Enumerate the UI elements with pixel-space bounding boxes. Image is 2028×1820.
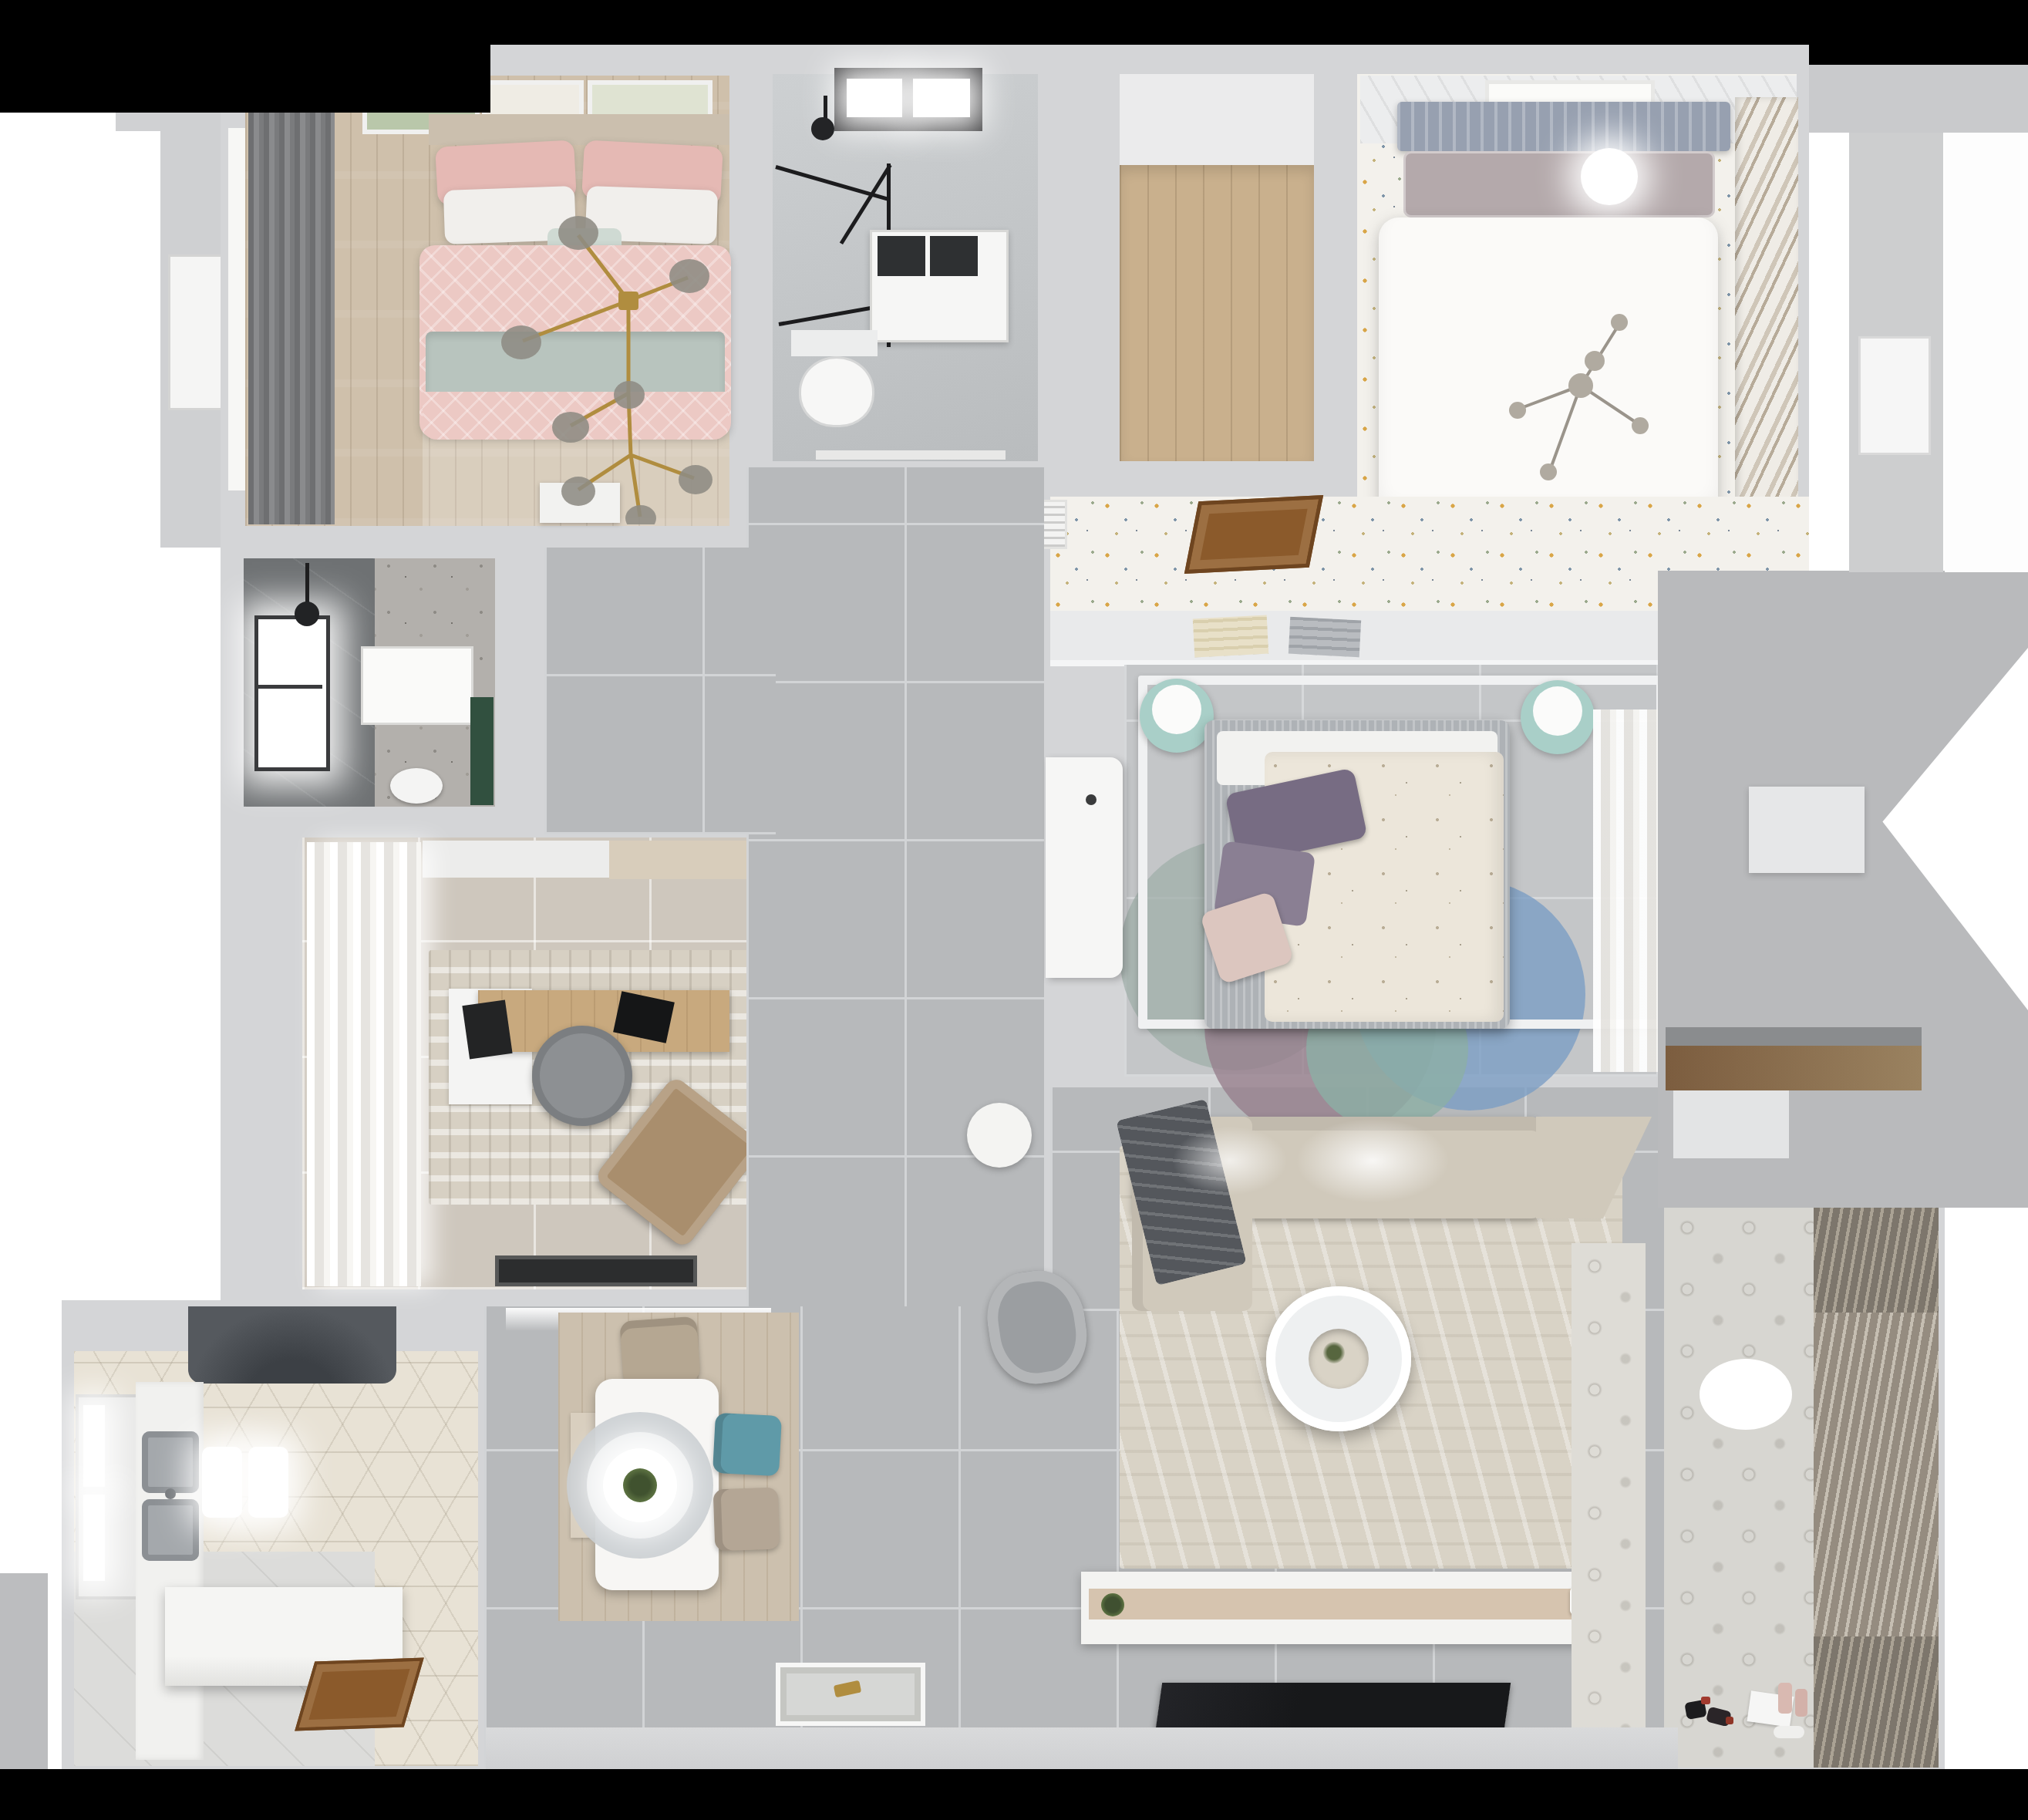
shower-head-icon bbox=[295, 602, 319, 626]
room-bathroom-main bbox=[773, 74, 1038, 461]
crop-mask-top-left bbox=[0, 0, 490, 113]
console-plant bbox=[1101, 1593, 1124, 1616]
storage-niche-shadow bbox=[1666, 1027, 1922, 1047]
terrace-slab bbox=[1749, 787, 1865, 873]
white-roll bbox=[1774, 1726, 1804, 1738]
pillow-band bbox=[1403, 151, 1715, 217]
ceiling-light-oval bbox=[1700, 1359, 1792, 1430]
bottom-wall-light-band bbox=[486, 1727, 1678, 1769]
exterior-door-right bbox=[1858, 336, 1931, 455]
bedside-lamp bbox=[1581, 148, 1638, 205]
swivel-chair bbox=[532, 1026, 632, 1126]
balcony-blinds-top bbox=[1814, 1205, 1939, 1313]
dining-chair-beige bbox=[713, 1488, 780, 1552]
table-plant-sprig bbox=[1323, 1342, 1345, 1363]
green-ledge bbox=[470, 697, 494, 805]
room-walk-in bbox=[1120, 74, 1314, 461]
branch-chandelier-icon bbox=[463, 201, 740, 524]
bed-headboard bbox=[1397, 102, 1730, 151]
toilet-bowl bbox=[390, 768, 443, 804]
toy-red bbox=[1701, 1697, 1710, 1704]
walkin-floor bbox=[1120, 165, 1314, 461]
washer-drum bbox=[930, 236, 978, 276]
washer-drum bbox=[878, 236, 925, 276]
sheer-curtain-wall bbox=[307, 842, 421, 1286]
room-bedroom-secondary bbox=[245, 76, 729, 526]
sofa-light-glow bbox=[1172, 1126, 1288, 1195]
room-balcony bbox=[1664, 1205, 1939, 1768]
sheer-wardrobe-curtain bbox=[1593, 709, 1658, 1072]
side-table-white bbox=[967, 1103, 1032, 1168]
desk-knob bbox=[1086, 794, 1097, 805]
sofa-light-glow bbox=[1295, 1118, 1450, 1203]
pendant-light bbox=[248, 1447, 288, 1518]
floorplan-render bbox=[0, 0, 2028, 1820]
tablet-black bbox=[462, 999, 512, 1059]
roman-blind bbox=[248, 77, 335, 524]
bed-headboard bbox=[429, 114, 729, 145]
skylight-pane bbox=[847, 79, 902, 117]
sink-basin bbox=[142, 1431, 199, 1493]
white-desk bbox=[1046, 757, 1123, 978]
skylight-pane bbox=[913, 79, 970, 117]
right-white-area bbox=[1945, 133, 2028, 572]
range-hood bbox=[188, 1306, 396, 1384]
pink-bottle bbox=[1795, 1689, 1807, 1717]
toilet-tank bbox=[791, 330, 878, 356]
door-mat-black bbox=[495, 1255, 697, 1286]
headboard-shelf-wall bbox=[1050, 611, 1681, 665]
sprig-chandelier-icon bbox=[1496, 293, 1666, 494]
dining-chair-beige bbox=[619, 1316, 701, 1387]
sink-faucet bbox=[165, 1488, 176, 1499]
open-walnut-door bbox=[1184, 495, 1323, 574]
room-dining bbox=[478, 1300, 910, 1771]
tv-console-wood-shelf bbox=[1089, 1589, 1599, 1619]
walkin-ceiling-edge bbox=[1120, 74, 1314, 165]
lamp-plant bbox=[623, 1468, 657, 1502]
storage-niche-wood bbox=[1666, 1046, 1922, 1090]
shower-stem bbox=[305, 563, 309, 605]
threshold bbox=[816, 450, 1006, 460]
room-bathroom-shower bbox=[244, 558, 495, 807]
dining-chair-teal bbox=[712, 1413, 782, 1476]
kitchen-window-pane bbox=[83, 1405, 105, 1487]
window-glow-bedroom2 bbox=[228, 128, 247, 490]
exterior-door bbox=[168, 254, 227, 410]
sink-basin bbox=[142, 1499, 199, 1561]
corridor-floor-upper-left bbox=[544, 548, 776, 834]
mint-pouf-tray bbox=[1152, 685, 1201, 734]
shelf-books bbox=[1193, 615, 1268, 658]
crop-mask-top-right bbox=[1809, 0, 2028, 65]
pendant-light bbox=[202, 1447, 242, 1518]
crop-mask-bottom bbox=[0, 1769, 2028, 1820]
kitchen-window-pane bbox=[83, 1495, 105, 1581]
bath2-window bbox=[254, 615, 330, 771]
pink-bottle bbox=[1778, 1683, 1792, 1714]
toilet-bowl bbox=[799, 356, 874, 427]
left-exterior-strip bbox=[0, 1573, 48, 1769]
patterned-walkway-strip bbox=[1572, 1243, 1646, 1768]
corridor-floor bbox=[746, 467, 1044, 1316]
room-kitchen bbox=[74, 1351, 478, 1766]
balcony-blinds-bottom bbox=[1814, 1636, 1939, 1768]
bath2-window-bar bbox=[254, 685, 322, 689]
toy-red bbox=[1726, 1717, 1733, 1724]
shelf-books bbox=[1289, 617, 1361, 658]
room-study bbox=[302, 838, 774, 1289]
open-walnut-door bbox=[295, 1658, 424, 1731]
mint-pouf-tray bbox=[1533, 686, 1582, 736]
shower-tray bbox=[361, 646, 473, 725]
shower-head-icon bbox=[811, 117, 834, 140]
room-bedroom-third bbox=[1046, 611, 1681, 1077]
